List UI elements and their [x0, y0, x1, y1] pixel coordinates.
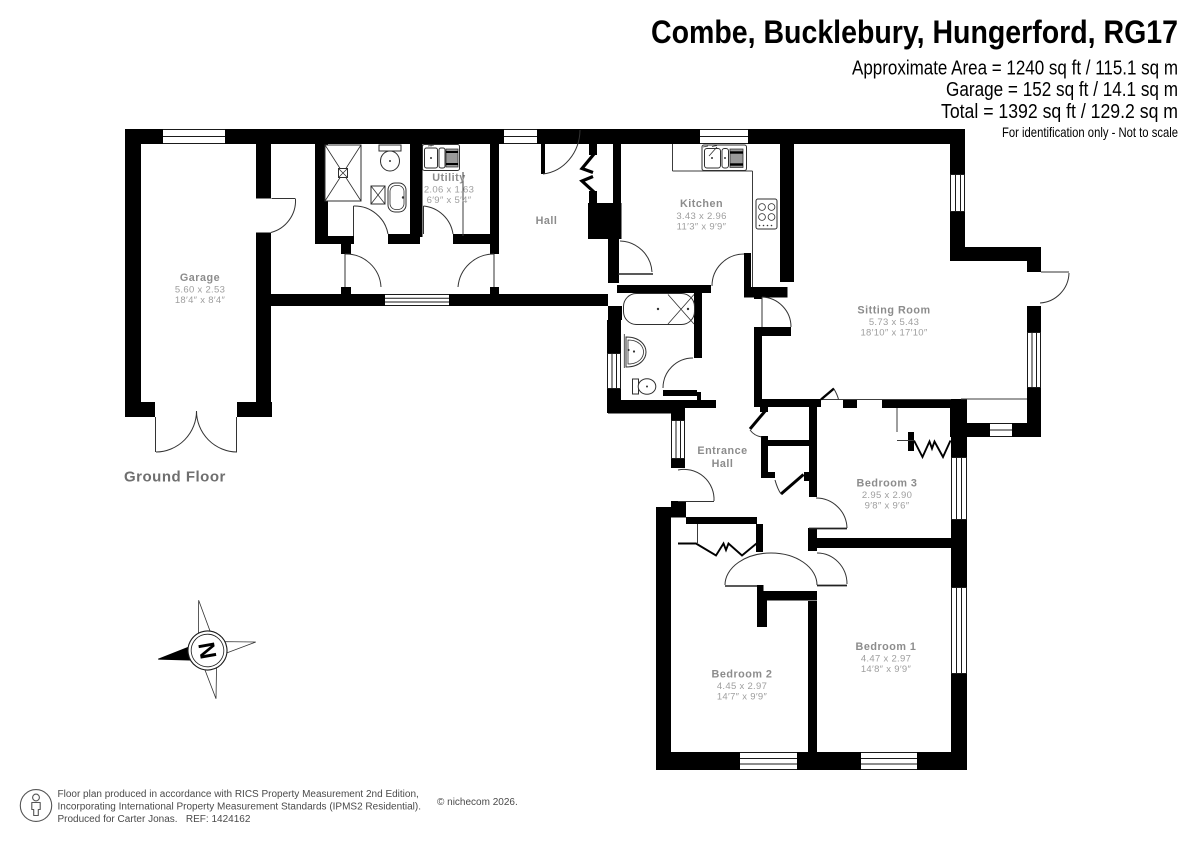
svg-text:2.06 x 1.63: 2.06 x 1.63 — [424, 185, 474, 196]
svg-text:11′3″ x 9′9″: 11′3″ x 9′9″ — [677, 222, 727, 233]
svg-text:5.60 x 2.53: 5.60 x 2.53 — [175, 285, 225, 296]
svg-text:Hall: Hall — [536, 215, 558, 227]
svg-text:3.43 x 2.96: 3.43 x 2.96 — [676, 211, 726, 222]
svg-text:Total = 1392 sq ft / 129.2 sq: Total = 1392 sq ft / 129.2 sq m — [941, 101, 1178, 123]
svg-text:Bedroom 2: Bedroom 2 — [712, 669, 773, 681]
svg-text:14′8″ x 9′9″: 14′8″ x 9′9″ — [861, 664, 912, 675]
svg-text:Bedroom 1: Bedroom 1 — [856, 641, 917, 653]
svg-text:Ground Floor: Ground Floor — [124, 469, 226, 486]
svg-text:Garage = 152 sq ft / 14.1 sq m: Garage = 152 sq ft / 14.1 sq m — [946, 79, 1178, 101]
svg-text:9′8″ x 9′6″: 9′8″ x 9′6″ — [865, 501, 910, 512]
svg-text:Incorporating International Pr: Incorporating International Property Mea… — [58, 802, 422, 813]
svg-text:Approximate Area = 1240 sq ft: Approximate Area = 1240 sq ft / 115.1 sq… — [852, 58, 1178, 80]
svg-text:Utility: Utility — [432, 172, 466, 184]
svg-text:2.95 x 2.90: 2.95 x 2.90 — [862, 490, 912, 501]
svg-text:5.73 x 5.43: 5.73 x 5.43 — [869, 317, 919, 328]
svg-text:© nichecom 2026.: © nichecom 2026. — [437, 797, 518, 808]
svg-text:4.47 x 2.97: 4.47 x 2.97 — [861, 654, 911, 665]
svg-text:Bedroom 3: Bedroom 3 — [857, 478, 918, 490]
svg-text:18′4″ x 8′4″: 18′4″ x 8′4″ — [175, 295, 226, 306]
svg-text:14′7″ x 9′9″: 14′7″ x 9′9″ — [717, 692, 768, 703]
svg-text:Floor plan produced in accorda: Floor plan produced in accordance with R… — [58, 789, 419, 800]
svg-text:For identification only - Not: For identification only - Not to scale — [1002, 125, 1178, 140]
svg-text:Combe, Bucklebury, Hungerford,: Combe, Bucklebury, Hungerford, RG17 — [651, 14, 1178, 50]
svg-text:6′9″ x 5′4″: 6′9″ x 5′4″ — [427, 195, 472, 206]
svg-text:Produced for Carter Jonas. R: Produced for Carter Jonas. REF: 1424162 — [58, 814, 251, 825]
svg-text:18′10″ x 17′10″: 18′10″ x 17′10″ — [860, 328, 927, 339]
svg-text:Garage: Garage — [180, 272, 220, 284]
svg-text:Hall: Hall — [712, 458, 734, 470]
svg-text:Sitting Room: Sitting Room — [857, 305, 930, 317]
svg-text:Entrance: Entrance — [697, 445, 747, 457]
svg-text:4.45 x 2.97: 4.45 x 2.97 — [717, 681, 767, 692]
svg-text:Kitchen: Kitchen — [680, 198, 723, 210]
